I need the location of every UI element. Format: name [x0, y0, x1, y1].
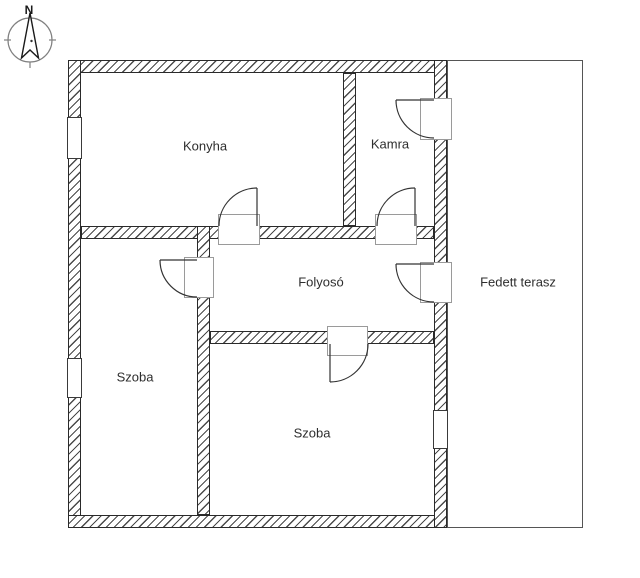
- wall-exterior-top: [68, 60, 447, 73]
- compass-rose-icon: [4, 13, 56, 68]
- compass-circle: [8, 18, 52, 62]
- door-frame-szoba-left: [184, 257, 214, 298]
- room-label-konyha: Konyha: [183, 139, 227, 154]
- wall-interior-corridor-bottom: [210, 331, 434, 344]
- room-label-terasz: Fedett terasz: [480, 275, 556, 290]
- floor-plan: N Konyha Kamra Folyosó Szoba Szoba Fedet…: [0, 0, 640, 578]
- door-frame-folyoso-entry: [420, 262, 452, 303]
- room-label-szoba-left: Szoba: [117, 370, 154, 385]
- room-label-szoba-bottom: Szoba: [294, 426, 331, 441]
- door-frame-konyha: [218, 214, 260, 245]
- window-konyha: [67, 117, 82, 159]
- door-frame-szoba-bottom: [327, 326, 368, 356]
- window-szoba-bottom: [433, 410, 448, 449]
- door-frame-kamra-bottom: [375, 214, 417, 245]
- door-frame-kamra-entry: [420, 98, 452, 140]
- room-label-folyoso: Folyosó: [298, 275, 344, 290]
- compass-north-label: N: [25, 3, 34, 17]
- room-label-kamra: Kamra: [371, 137, 409, 152]
- wall-interior-konyha-kamra: [343, 73, 356, 226]
- terrace-area: [447, 60, 583, 528]
- compass-center-dot: [30, 40, 32, 42]
- window-szoba-left: [67, 358, 82, 398]
- wall-exterior-bottom: [68, 515, 447, 528]
- north-needle-icon: [22, 13, 39, 58]
